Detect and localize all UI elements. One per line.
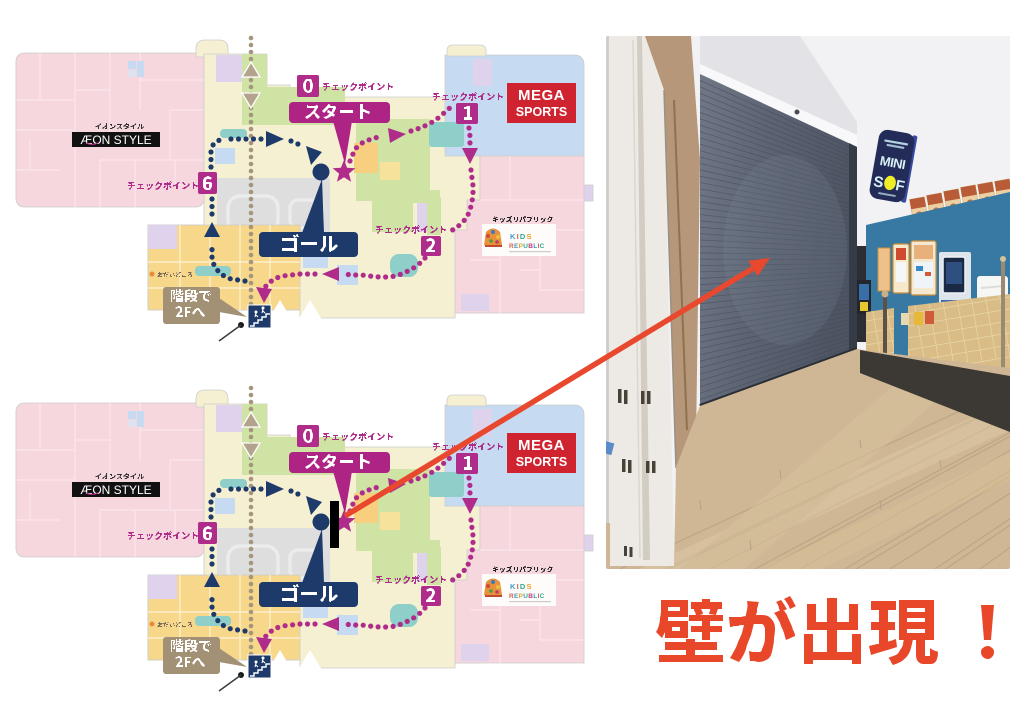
svg-text:KIDS: KIDS	[510, 582, 533, 591]
svg-text:KIDS: KIDS	[510, 232, 533, 241]
svg-text:SPORTS: SPORTS	[516, 105, 567, 119]
svg-text:REPUBLIC: REPUBLIC	[509, 243, 545, 250]
svg-text:MEGA: MEGA	[518, 437, 565, 454]
svg-text:MEGA: MEGA	[518, 87, 565, 104]
svg-text:REPUBLIC: REPUBLIC	[509, 593, 545, 600]
svg-text:SPORTS: SPORTS	[516, 455, 567, 469]
